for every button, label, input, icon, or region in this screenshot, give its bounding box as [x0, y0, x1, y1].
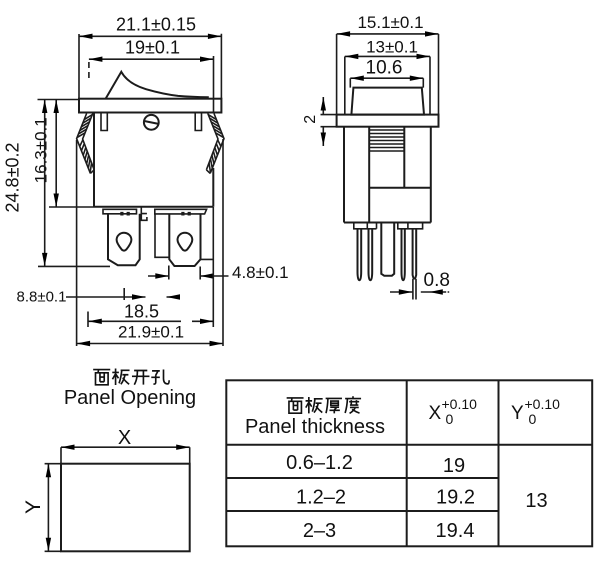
svg-text:4.8±0.1: 4.8±0.1: [232, 263, 289, 282]
svg-text:10.6: 10.6: [366, 58, 403, 79]
svg-text:0.8: 0.8: [424, 270, 450, 291]
svg-text:+0.10: +0.10: [525, 396, 561, 412]
svg-text:16.3±0.1: 16.3±0.1: [32, 117, 51, 183]
svg-text:13±0.1: 13±0.1: [366, 38, 418, 57]
svg-text:8.8±0.1: 8.8±0.1: [17, 289, 67, 306]
svg-text:0: 0: [446, 411, 454, 427]
svg-text:13: 13: [525, 490, 547, 512]
svg-text:0: 0: [529, 411, 537, 427]
svg-text:21.9±0.1: 21.9±0.1: [118, 323, 184, 342]
svg-text:Panel Opening: Panel Opening: [64, 387, 196, 409]
svg-text:24.8±0.2: 24.8±0.2: [3, 143, 23, 213]
svg-text:19.4: 19.4: [436, 520, 475, 542]
svg-text:18.5: 18.5: [124, 302, 159, 322]
svg-text:21.1±0.15: 21.1±0.15: [116, 15, 196, 35]
svg-text:+0.10: +0.10: [442, 396, 478, 412]
svg-text:2–3: 2–3: [303, 520, 336, 542]
svg-text:19±0.1: 19±0.1: [125, 38, 180, 58]
svg-text:Y: Y: [22, 500, 45, 514]
svg-text:Y: Y: [511, 403, 524, 424]
svg-text:2: 2: [302, 115, 319, 124]
svg-text:X: X: [118, 427, 131, 449]
svg-text:0.6–1.2: 0.6–1.2: [286, 452, 353, 474]
svg-text:X: X: [429, 403, 442, 424]
svg-text:15.1±0.1: 15.1±0.1: [357, 13, 423, 32]
svg-text:1.2–2: 1.2–2: [296, 487, 346, 509]
svg-text:19: 19: [443, 455, 465, 477]
svg-text:19.2: 19.2: [436, 487, 475, 509]
svg-text:Panel thickness: Panel thickness: [245, 416, 385, 438]
